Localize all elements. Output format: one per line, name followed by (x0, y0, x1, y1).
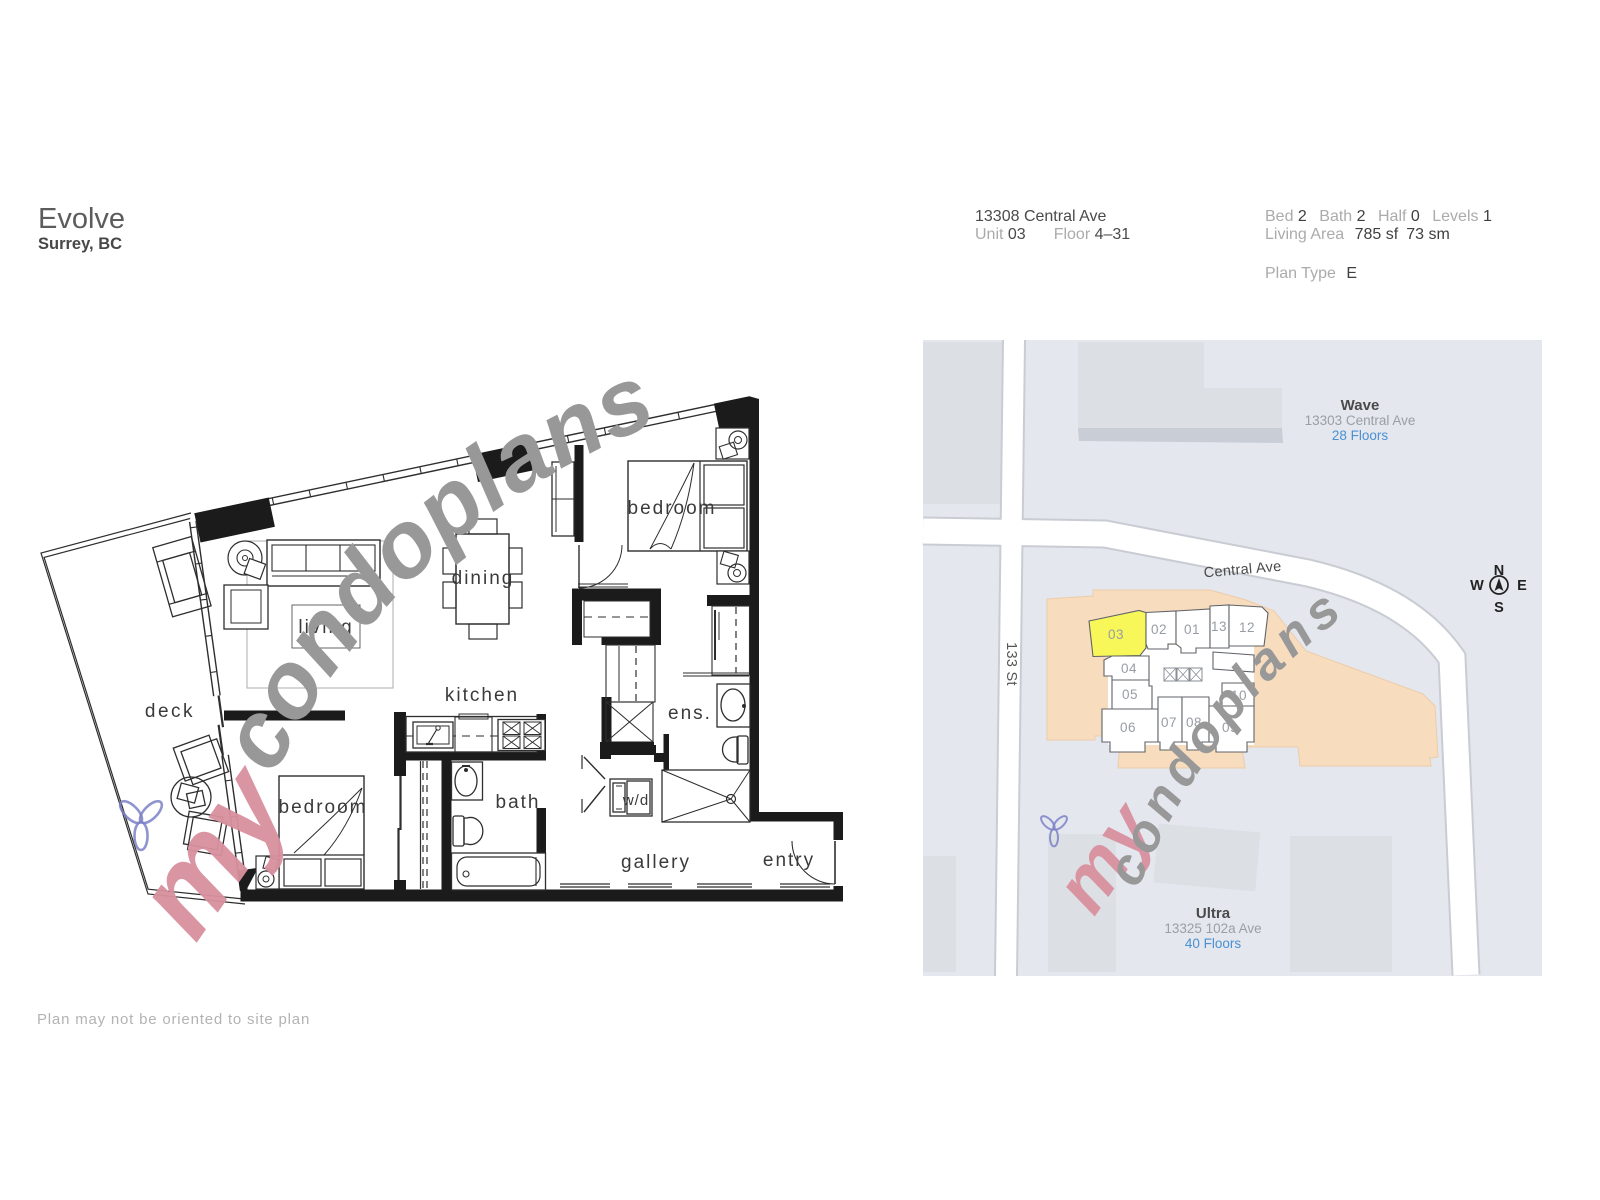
svg-text:W: W (1470, 578, 1484, 594)
svg-text:ens.: ens. (668, 703, 712, 724)
svg-text:28 Floors: 28 Floors (1332, 428, 1389, 443)
svg-text:06: 06 (1120, 720, 1136, 735)
svg-text:Wave: Wave (1341, 397, 1380, 414)
svg-text:12: 12 (1239, 620, 1255, 635)
svg-text:bedroom: bedroom (628, 498, 717, 519)
svg-text:13303 Central Ave: 13303 Central Ave (1305, 413, 1416, 428)
svg-text:Evolve: Evolve (38, 203, 125, 235)
svg-text:Surrey, BC: Surrey, BC (38, 235, 122, 253)
svg-text:13308 Central Ave: 13308 Central Ave (975, 208, 1106, 225)
svg-text:05: 05 (1122, 687, 1138, 702)
svg-text:gallery: gallery (621, 852, 691, 873)
svg-text:04: 04 (1121, 661, 1137, 676)
svg-text:Ultra: Ultra (1196, 905, 1231, 922)
svg-text:40 Floors: 40 Floors (1185, 936, 1242, 951)
svg-text:13: 13 (1211, 619, 1227, 634)
svg-text:w/d: w/d (622, 792, 649, 809)
svg-text:02: 02 (1151, 622, 1167, 637)
svg-text:S: S (1494, 600, 1504, 616)
svg-text:Bed 2 Bath 2 Half 0 Levels 1: Bed 2 Bath 2 Half 0 Levels 1 (1265, 208, 1492, 225)
svg-text:03: 03 (1108, 627, 1124, 642)
svg-text:entry: entry (763, 850, 815, 871)
svg-text:E: E (1517, 578, 1527, 594)
svg-text:deck: deck (145, 701, 195, 722)
svg-text:Plan may not be oriented to si: Plan may not be oriented to site plan (37, 1011, 310, 1028)
svg-text:bath: bath (496, 792, 541, 813)
svg-text:133 St: 133 St (1003, 642, 1019, 686)
svg-text:01: 01 (1184, 622, 1200, 637)
svg-text:Living Area 785 sf73 sm: Living Area 785 sf73 sm (1265, 226, 1450, 243)
svg-text:kitchen: kitchen (445, 685, 519, 706)
svg-text:13325 102a Ave: 13325 102a Ave (1164, 921, 1261, 936)
svg-text:dining: dining (452, 568, 515, 589)
